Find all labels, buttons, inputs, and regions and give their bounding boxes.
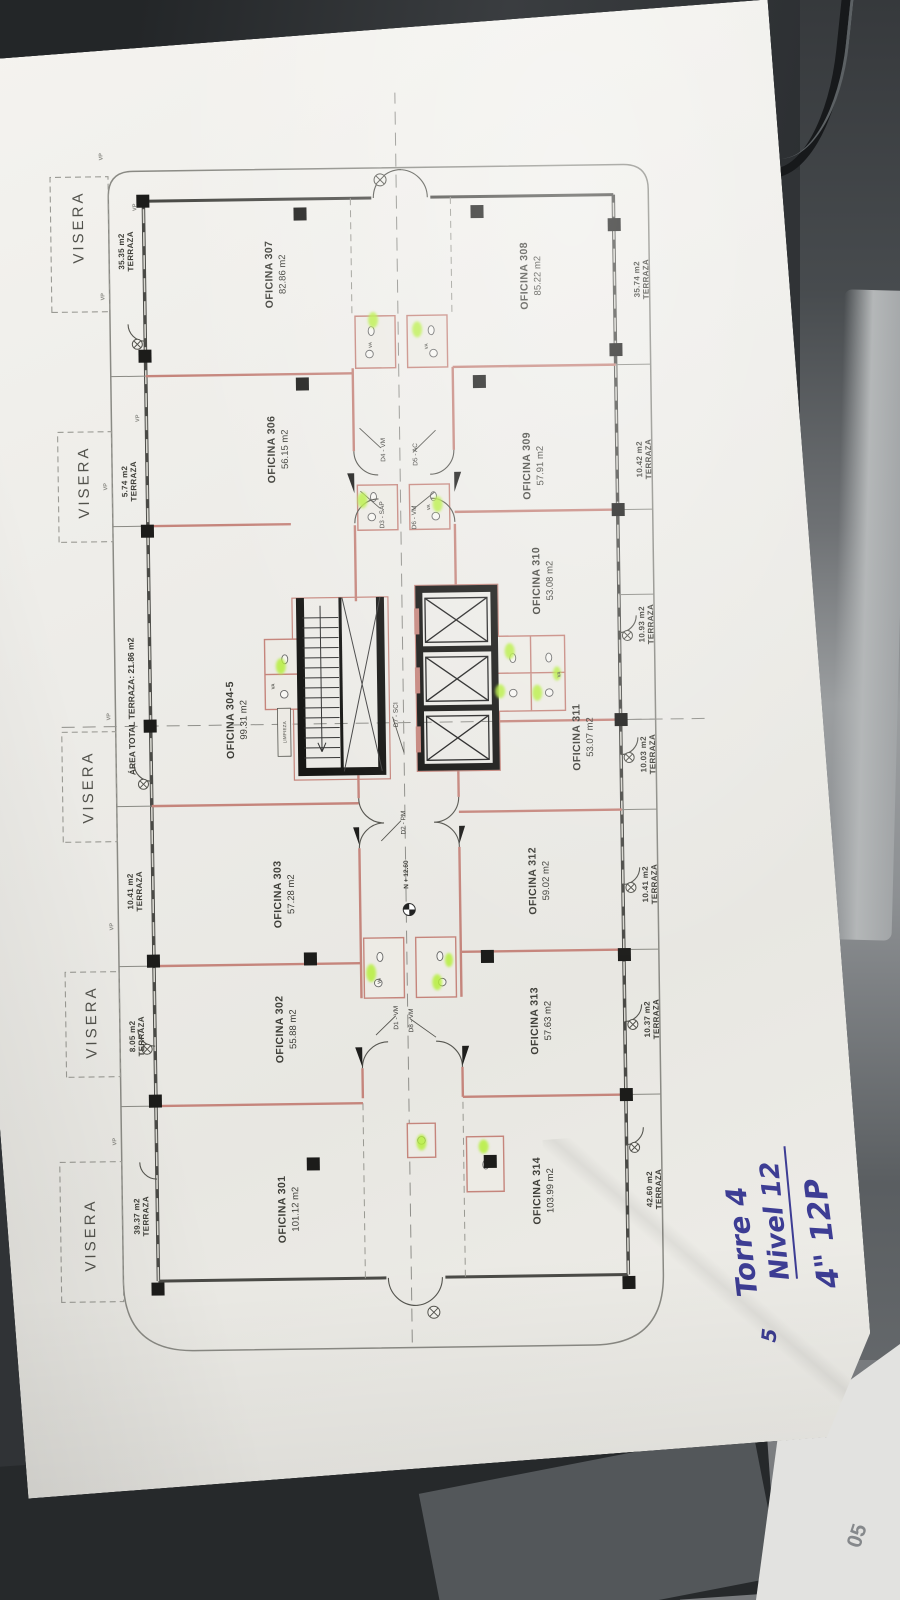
area-total-terraza-label: ÁREA TOTAL TERRAZA: 21.86 m2 <box>127 638 139 776</box>
office-name: OFICINA 303 <box>272 860 285 928</box>
office-name: OFICINA 308 <box>518 242 531 310</box>
door-label: D1 - VM <box>393 1006 401 1030</box>
terrace-label: 10.03 m2 TERRAZA <box>639 734 658 775</box>
office-area: 101.12 m2 <box>291 1175 303 1243</box>
va-tag: VA <box>377 978 382 984</box>
office-label: OFICINA 303 57.28 m2 <box>272 860 299 928</box>
vp-tag: VP <box>132 204 138 211</box>
va-tag: VA <box>426 504 431 510</box>
office-name: OFICINA 310 <box>530 547 543 615</box>
office-label: OFICINA 304-5 99.31 m2 <box>224 681 251 759</box>
office-name: OFICINA 301 <box>276 1175 289 1243</box>
office-name: OFICINA 307 <box>263 241 276 309</box>
vp-tag: VP <box>109 923 115 930</box>
office-label: OFICINA 308 85.22 m2 <box>518 242 545 310</box>
office-label: OFICINA 313 57.63 m2 <box>528 987 555 1055</box>
door-label: D4 - VM <box>380 438 388 462</box>
under-sheet-page-number: 05 <box>843 1521 873 1551</box>
floor-plan: VISERA VISERA VISERA VISERA VISERA 35.35… <box>27 78 745 1358</box>
office-label: OFICINA 306 56.15 m2 <box>265 415 292 483</box>
door-label: D5 - AC <box>412 443 420 466</box>
office-area: 99.31 m2 <box>239 681 251 759</box>
office-area: 59.02 m2 <box>541 847 553 915</box>
terrace-word: TERRAZA <box>654 1169 664 1209</box>
terrace-label: 10.41 m2 TERRAZA <box>641 864 660 905</box>
visera-label: VISERA <box>79 750 97 823</box>
office-label: OFICINA 310 53.08 m2 <box>530 547 557 615</box>
elevator-core <box>414 588 496 767</box>
terrace-word: TERRAZA <box>646 604 656 644</box>
terrace-label: 39.37 m2 TERRAZA <box>132 1196 151 1237</box>
level-mark-label: N + 12.60 <box>403 860 411 888</box>
visera-label: VISERA <box>70 190 88 263</box>
vp-tag: VP <box>103 483 109 490</box>
vp-tag: VP <box>112 1138 118 1145</box>
office-label: OFICINA 307 82.86 m2 <box>263 240 290 308</box>
terrace-label: 8.05 m2 TERRAZA <box>128 1016 147 1057</box>
floor-plan-paper: VISERA VISERA VISERA VISERA VISERA 35.35… <box>0 0 878 1499</box>
office-area: 56.15 m2 <box>280 415 292 483</box>
terrace-label: 5.74 m2 TERRAZA <box>120 461 139 502</box>
terrace-word: TERRAZA <box>652 999 662 1039</box>
terrace-label: 35.35 m2 TERRAZA <box>117 231 136 272</box>
terrace-word: TERRAZA <box>135 871 145 911</box>
vp-tag: VP <box>100 293 106 300</box>
terrace-label: 35.74 m2 TERRAZA <box>632 259 651 300</box>
office-name: OFICINA 311 <box>570 704 583 771</box>
office-label: OFICINA 311 53.07 m2 <box>570 703 597 770</box>
terrace-label: 10.41 m2 TERRAZA <box>126 871 145 912</box>
terrace-label: 10.42 m2 TERRAZA <box>635 439 654 480</box>
office-name: OFICINA 314 <box>531 1157 544 1225</box>
photo-scene: 05 <box>0 0 900 1600</box>
core-room-label: LIMPIEZA <box>282 721 287 743</box>
office-area: 57.63 m2 <box>543 987 555 1055</box>
terrace-word: TERRAZA <box>641 259 651 299</box>
handwritten-note: Torre 4 Nivel 12 4" 12P <box>707 1030 841 1298</box>
visera-label: VISERA <box>82 1198 100 1271</box>
terrace-word: TERRAZA <box>650 864 660 904</box>
door-label: D7 - SCI <box>393 702 401 727</box>
door-label: D6 - VM <box>411 505 419 529</box>
terrace-label: 42.60 m2 TERRAZA <box>645 1169 664 1210</box>
office-area: 57.28 m2 <box>287 860 299 928</box>
terrace-label: 10.37 m2 TERRAZA <box>643 999 662 1040</box>
terrace-word: TERRAZA <box>141 1196 151 1236</box>
door-label: D8 - VM <box>408 1009 416 1033</box>
office-area: 57.91 m2 <box>536 432 548 500</box>
plan-rotated-container: VISERA VISERA VISERA VISERA VISERA 35.35… <box>27 78 745 1358</box>
va-tag: VA <box>270 683 275 689</box>
visera-label: VISERA <box>75 445 93 518</box>
terrace-label: 10.93 m2 TERRAZA <box>637 604 656 645</box>
office-area: 55.88 m2 <box>289 995 301 1063</box>
office-area: 103.99 m2 <box>546 1157 558 1225</box>
office-name: OFICINA 313 <box>528 987 541 1055</box>
vp-tag: VP <box>99 153 105 160</box>
office-area: 82.86 m2 <box>278 240 290 308</box>
va-tag: VA <box>424 343 429 349</box>
office-area: 85.22 m2 <box>533 242 545 310</box>
office-label: OFICINA 302 55.88 m2 <box>273 995 300 1063</box>
vp-tag: VP <box>106 713 112 720</box>
office-label: OFICINA 301 101.12 m2 <box>276 1175 303 1243</box>
terrace-word: TERRAZA <box>137 1016 147 1056</box>
office-area: 53.07 m2 <box>585 703 597 770</box>
handwritten-stray-digit: 5 <box>756 1327 781 1343</box>
door-label: D3 - SAP <box>379 501 387 528</box>
office-label: OFICINA 312 59.02 m2 <box>526 847 553 915</box>
va-tag: VA <box>368 342 373 348</box>
office-name: OFICINA 306 <box>265 416 278 484</box>
office-name: OFICINA 309 <box>521 432 534 500</box>
vp-tag: VP <box>135 415 141 422</box>
door-label: D2 - PM <box>400 811 408 835</box>
terrace-word: TERRAZA <box>129 461 139 501</box>
visera-label: VISERA <box>83 985 101 1058</box>
office-label: OFICINA 309 57.91 m2 <box>521 432 548 500</box>
office-name: OFICINA 304-5 <box>224 681 237 759</box>
va-tag: VA <box>556 671 561 677</box>
level-symbol <box>403 903 415 915</box>
office-name: OFICINA 312 <box>526 847 539 915</box>
visera-canopies <box>46 177 124 1303</box>
office-area: 53.08 m2 <box>545 547 557 615</box>
terrace-word: TERRAZA <box>648 734 658 774</box>
office-label: OFICINA 314 103.99 m2 <box>531 1157 558 1225</box>
office-name: OFICINA 302 <box>273 995 286 1063</box>
terrace-word: TERRAZA <box>644 439 654 479</box>
terrace-word: TERRAZA <box>126 231 136 271</box>
